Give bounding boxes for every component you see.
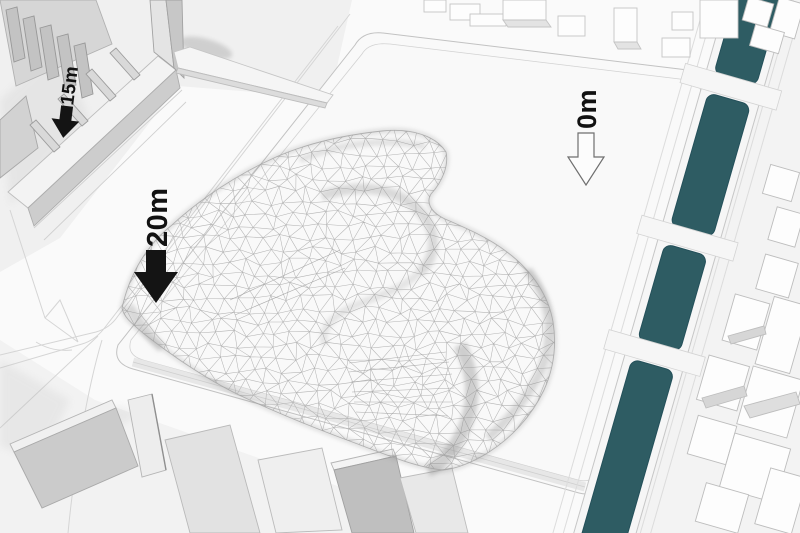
building-block [614, 8, 637, 42]
label-canopy-height: 20m [142, 187, 174, 247]
building-block [503, 0, 546, 20]
building-block [470, 14, 506, 26]
building-block [662, 38, 690, 57]
building-face [614, 42, 641, 49]
building-block [672, 12, 693, 30]
diagram-canvas: 15m 20m 0m [0, 0, 800, 533]
label-ground-level: 0m [572, 89, 602, 129]
site-diagram: 15m 20m 0m [0, 0, 800, 533]
building-block [700, 0, 738, 38]
building-face [503, 20, 551, 27]
building-block [558, 16, 585, 36]
